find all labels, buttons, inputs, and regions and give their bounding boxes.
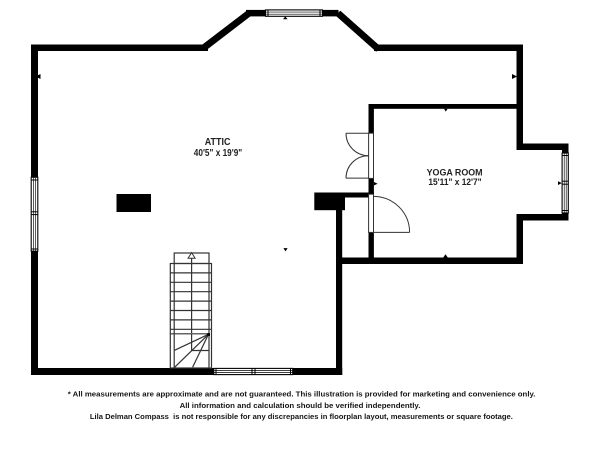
- svg-text:ATTIC: ATTIC: [205, 137, 231, 148]
- svg-text:15'11" x 12'7": 15'11" x 12'7": [428, 176, 481, 187]
- svg-text:All information and calculatio: All information and calculation should b…: [180, 401, 421, 410]
- svg-text:40'5" x 19'9": 40'5" x 19'9": [194, 148, 242, 159]
- svg-text:* All measurements are approxi: * All measurements are approximate and a…: [68, 390, 536, 399]
- svg-text:Lila Delman Compass is not re: Lila Delman Compass is not responsible f…: [90, 412, 513, 421]
